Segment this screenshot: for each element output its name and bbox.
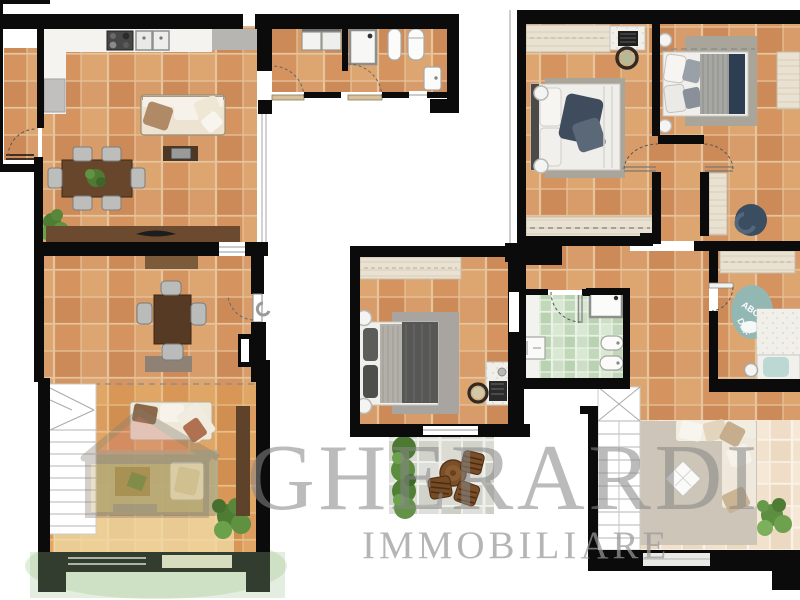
svg-text:GHERARDI: GHERARDI: [247, 426, 761, 530]
svg-text:IMMOBILIARE: IMMOBILIARE: [362, 524, 670, 567]
